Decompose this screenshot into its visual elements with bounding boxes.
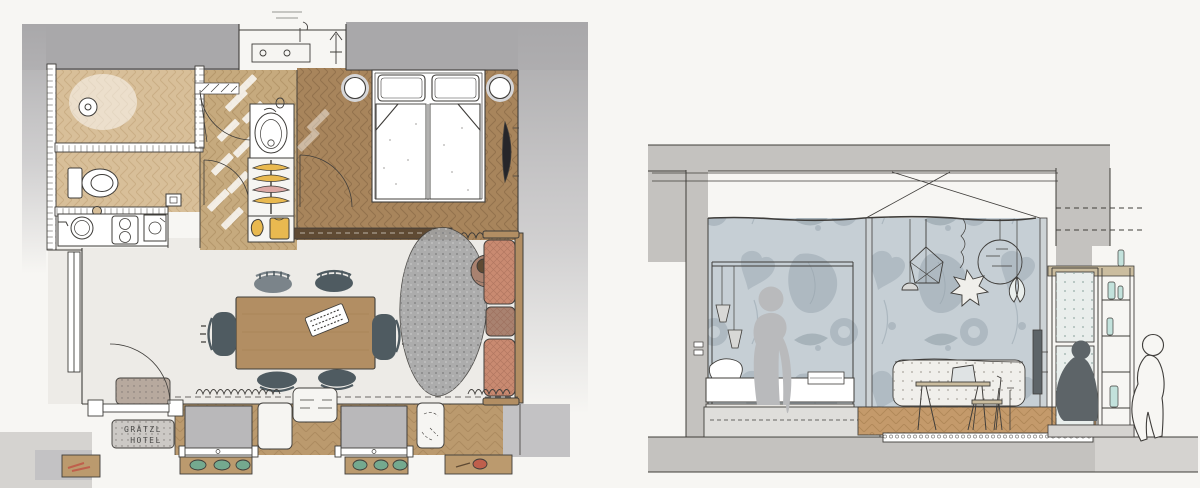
wardrobe-unit bbox=[248, 98, 294, 242]
bottle-3 bbox=[1107, 318, 1113, 335]
toilet bbox=[68, 168, 118, 198]
planter-1 bbox=[180, 457, 252, 474]
bottle-2 bbox=[1118, 286, 1123, 299]
bottle-4 bbox=[1110, 386, 1118, 407]
seat-cushion-3 bbox=[293, 388, 337, 422]
chair-bottom-right bbox=[318, 370, 356, 390]
sofa-arm-bottom bbox=[483, 398, 519, 405]
sofa-arm-top bbox=[483, 231, 519, 238]
ceiling-light-glow bbox=[69, 74, 137, 130]
toilet-paper-box bbox=[166, 194, 181, 206]
folded-socks bbox=[251, 219, 263, 236]
sofa-back-frame bbox=[515, 233, 523, 403]
doormat-text-line2: HOTEL bbox=[130, 436, 162, 445]
plant-5 bbox=[374, 460, 388, 470]
sofa bbox=[483, 231, 523, 405]
planter-4 bbox=[62, 455, 100, 477]
plant-6 bbox=[393, 460, 407, 470]
left-window bbox=[68, 252, 80, 372]
plant-4 bbox=[353, 460, 367, 470]
ceiling-slab bbox=[648, 145, 1110, 171]
plant-3 bbox=[236, 460, 250, 470]
wall-bottom-right-block bbox=[503, 404, 570, 457]
wall-top-left bbox=[22, 24, 239, 70]
doormat-text-line1: GRÄTZL bbox=[124, 424, 162, 434]
shower-head bbox=[79, 98, 97, 116]
planter-2 bbox=[345, 457, 408, 474]
bottle-5 bbox=[1118, 250, 1124, 266]
door-handle-1 bbox=[694, 342, 703, 347]
wall-right-band bbox=[518, 24, 588, 414]
left-wall-block bbox=[648, 145, 686, 262]
drawing-canvas: GRÄTZL HOTEL bbox=[0, 0, 1200, 488]
dining-table bbox=[236, 297, 375, 369]
base-band bbox=[704, 407, 880, 437]
bedside-lamp-right bbox=[490, 78, 511, 99]
tv-panel bbox=[1033, 330, 1042, 394]
plant-1 bbox=[190, 460, 206, 470]
seat-cushion-2 bbox=[417, 403, 444, 448]
window-bar-2 bbox=[335, 446, 413, 457]
floor-buildup bbox=[704, 407, 1096, 442]
window-bar-1 bbox=[179, 446, 258, 457]
pillow-right bbox=[432, 75, 479, 101]
planter-3 bbox=[445, 455, 512, 474]
entrance-door-leaf bbox=[103, 404, 169, 412]
hatched-vent bbox=[195, 83, 239, 94]
red-flower bbox=[473, 459, 487, 469]
pillow-left bbox=[378, 75, 425, 101]
chair-bottom-left bbox=[257, 372, 297, 392]
wall-left-band bbox=[22, 24, 46, 274]
bedside-lamp-left bbox=[345, 78, 366, 99]
door-post-left bbox=[88, 400, 103, 416]
exterior-pavement bbox=[1095, 437, 1198, 472]
right-wall-step bbox=[1056, 246, 1092, 268]
vanity-counter bbox=[58, 214, 168, 246]
window-sill-block bbox=[1048, 425, 1134, 437]
window-sash-1 bbox=[185, 406, 252, 450]
bottle-1 bbox=[1108, 282, 1115, 299]
left-wall-pier bbox=[686, 170, 708, 437]
architectural-sketch-page: GRÄTZL HOTEL bbox=[0, 0, 1200, 488]
seat-cushion-1 bbox=[258, 403, 292, 449]
right-wall-upper bbox=[1056, 168, 1110, 246]
folded-shirt bbox=[270, 218, 289, 239]
window-sash-2 bbox=[341, 406, 407, 450]
door-handle-2 bbox=[694, 350, 703, 355]
plant-2 bbox=[214, 460, 230, 470]
